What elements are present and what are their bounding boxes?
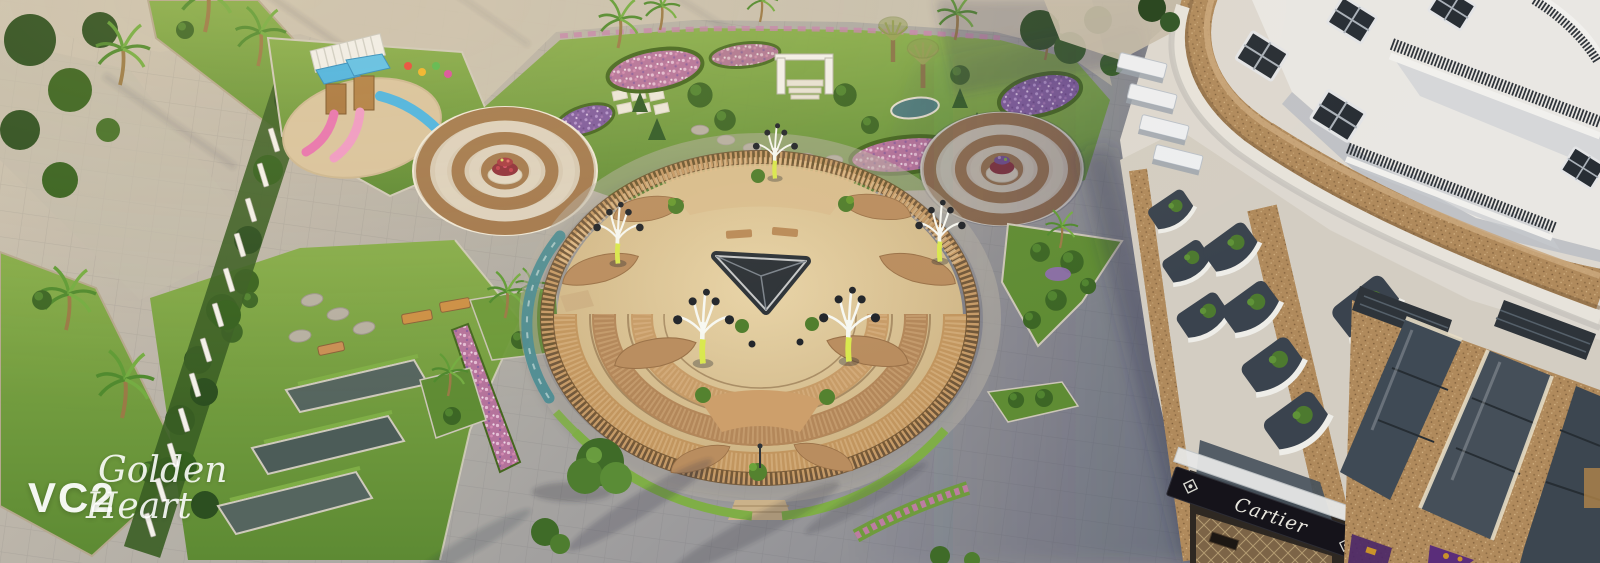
scene-canvas: Cartier [0,0,1600,563]
aerial-courtyard-render: Cartier [0,0,1600,563]
warm-light-overlay [0,0,1600,563]
